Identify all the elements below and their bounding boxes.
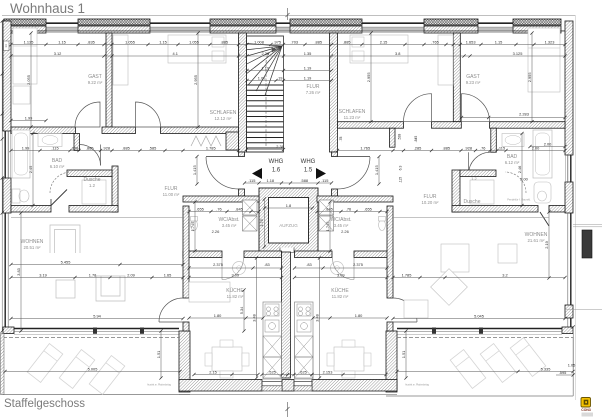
svg-text:.845: .845 [325, 206, 333, 211]
svg-text:11.82 m²: 11.82 m² [332, 294, 349, 299]
svg-text:2.38: 2.38 [261, 51, 269, 56]
svg-text:.625: .625 [299, 369, 307, 374]
svg-text:2.955: 2.955 [527, 72, 532, 82]
svg-text:.76: .76 [346, 206, 351, 211]
svg-text:.885: .885 [86, 145, 94, 150]
svg-text:2.26: 2.26 [341, 229, 350, 234]
svg-text:.115: .115 [51, 145, 58, 150]
svg-text:.528: .528 [398, 134, 402, 141]
svg-text:2.19: 2.19 [544, 241, 549, 249]
svg-text:1.75: 1.75 [259, 219, 264, 227]
svg-text:Pendeltür f. Raumkl.: Pendeltür f. Raumkl. [507, 198, 531, 202]
svg-text:.703: .703 [290, 39, 298, 44]
svg-text:3.48: 3.48 [251, 314, 256, 322]
svg-text:1.653: 1.653 [466, 39, 476, 44]
svg-text:.115: .115 [399, 177, 403, 183]
svg-text:2.955: 2.955 [366, 72, 371, 82]
svg-text:1.8: 1.8 [286, 203, 291, 208]
svg-text:3.125: 3.125 [513, 51, 523, 56]
svg-text:1.99: 1.99 [22, 145, 30, 150]
svg-text:9.22 m²: 9.22 m² [88, 80, 103, 85]
svg-text:1.80: 1.80 [355, 313, 363, 318]
svg-text:.19: .19 [277, 75, 282, 80]
svg-text:.595: .595 [559, 370, 567, 375]
svg-text:12.12 m²: 12.12 m² [215, 116, 233, 121]
svg-text:10.20 m²: 10.20 m² [422, 200, 440, 205]
svg-text:3.2: 3.2 [502, 272, 507, 277]
svg-text:Austritt m. Plattenbelag: Austritt m. Plattenbelag [147, 384, 171, 387]
svg-text:CON3: CON3 [581, 408, 591, 412]
svg-text:9.23 m²: 9.23 m² [466, 80, 481, 85]
svg-text:3.45 m²: 3.45 m² [334, 223, 349, 228]
svg-text:.655: .655 [364, 206, 372, 211]
svg-text:5.34: 5.34 [239, 306, 244, 314]
svg-text:5.005: 5.005 [88, 366, 98, 371]
svg-text:6.10 m²: 6.10 m² [50, 164, 65, 169]
svg-text:6.3: 6.3 [399, 166, 403, 171]
svg-text:KÜCHE: KÜCHE [226, 287, 244, 294]
svg-text:2.15: 2.15 [380, 39, 388, 44]
svg-text:3.45 m²: 3.45 m² [222, 223, 237, 228]
svg-text:2.153: 2.153 [323, 369, 333, 374]
svg-text:.928: .928 [464, 145, 472, 150]
svg-text:2.26: 2.26 [212, 229, 221, 234]
svg-text:4.1: 4.1 [173, 51, 178, 56]
svg-text:.115: .115 [498, 145, 505, 150]
svg-text:1.19: 1.19 [261, 65, 269, 70]
svg-text:6.12 m²: 6.12 m² [505, 160, 520, 165]
svg-text:2.055: 2.055 [26, 75, 31, 85]
svg-text:1.51: 1.51 [401, 351, 406, 359]
svg-text:WHG: WHG [301, 159, 316, 165]
svg-text:2.00: 2.00 [520, 177, 528, 182]
svg-text:1.135: 1.135 [24, 39, 34, 44]
svg-text:1.2: 1.2 [471, 176, 477, 181]
svg-text:1.65: 1.65 [164, 272, 172, 277]
svg-text:.885: .885 [314, 39, 322, 44]
svg-text:1.765: 1.765 [360, 145, 370, 150]
svg-text:.885: .885 [220, 39, 228, 44]
svg-text:.76: .76 [216, 206, 221, 211]
svg-text:.008: .008 [71, 145, 79, 150]
svg-text:.78: .78 [339, 137, 343, 142]
svg-text:2.15: 2.15 [209, 369, 217, 374]
svg-text:1.323: 1.323 [545, 39, 555, 44]
svg-text:21.61 m²: 21.61 m² [528, 238, 546, 243]
svg-text:3.09: 3.09 [231, 272, 239, 277]
svg-text:2.283: 2.283 [519, 112, 529, 117]
svg-text:1.785: 1.785 [206, 145, 216, 150]
svg-text:2.00: 2.00 [544, 141, 552, 146]
svg-text:1.35: 1.35 [304, 51, 312, 56]
svg-text:1.415: 1.415 [374, 165, 379, 175]
svg-text:1.15: 1.15 [495, 39, 503, 44]
svg-text:11.82 m²: 11.82 m² [227, 294, 244, 299]
svg-text:2.45: 2.45 [28, 166, 33, 174]
svg-text:.83: .83 [264, 262, 269, 267]
svg-text:3.48: 3.48 [314, 314, 319, 322]
svg-text:WHG: WHG [269, 159, 284, 165]
svg-text:2.375: 2.375 [353, 262, 363, 267]
svg-text:20.51 m²: 20.51 m² [24, 245, 42, 250]
svg-text:1.51: 1.51 [156, 351, 161, 359]
svg-text:5.045: 5.045 [474, 313, 484, 318]
svg-text:.115: .115 [321, 178, 328, 183]
svg-text:1.5: 1.5 [304, 168, 313, 174]
svg-text:1.19: 1.19 [304, 75, 312, 80]
svg-text:.83: .83 [306, 262, 311, 267]
svg-text:.588: .588 [300, 178, 308, 183]
svg-text:1.05: 1.05 [568, 363, 576, 368]
svg-text:.835: .835 [87, 39, 95, 44]
svg-text:3.09: 3.09 [337, 272, 345, 277]
svg-text:3.8: 3.8 [395, 51, 400, 56]
svg-text:2.375: 2.375 [213, 262, 223, 267]
svg-text:.885: .885 [343, 39, 351, 44]
svg-text:KÜCHE: KÜCHE [331, 287, 349, 294]
svg-text:.885: .885 [122, 145, 130, 150]
svg-text:AUFZUG: AUFZUG [279, 223, 298, 228]
svg-text:5.335: 5.335 [541, 366, 551, 371]
svg-text:7.26 m²: 7.26 m² [306, 90, 321, 95]
svg-text:.885: .885 [442, 145, 450, 150]
svg-text:3.83: 3.83 [16, 268, 21, 276]
svg-text:2.46: 2.46 [517, 166, 522, 174]
svg-text:.655: .655 [196, 206, 204, 211]
svg-text:.845: .845 [414, 136, 418, 143]
svg-text:1.00: 1.00 [258, 75, 266, 80]
svg-text:1.415: 1.415 [192, 165, 197, 175]
svg-text:1.78: 1.78 [89, 272, 97, 277]
svg-text:5.455: 5.455 [61, 259, 71, 264]
svg-text:1.785: 1.785 [402, 272, 412, 277]
svg-text:.845: .845 [235, 206, 243, 211]
svg-text:.115: .115 [248, 178, 255, 183]
svg-text:3.19: 3.19 [39, 272, 47, 277]
svg-text:5.94: 5.94 [93, 313, 101, 318]
svg-text:1.19: 1.19 [304, 65, 312, 70]
svg-text:Wohnhaus 1: Wohnhaus 1 [10, 1, 85, 16]
svg-text:11.23 m²: 11.23 m² [344, 115, 361, 120]
svg-text:1.6: 1.6 [272, 168, 281, 174]
svg-text:2.955: 2.955 [193, 75, 198, 85]
svg-text:1.80: 1.80 [214, 313, 222, 318]
svg-text:Austritt m. Plattenbelag: Austritt m. Plattenbelag [405, 384, 429, 387]
svg-text:11.00 m²: 11.00 m² [163, 192, 180, 197]
svg-text:14: 14 [4, 44, 8, 48]
svg-text:Dusche: Dusche [464, 199, 481, 205]
svg-text:1.745: 1.745 [190, 222, 195, 232]
svg-text:2.00: 2.00 [532, 145, 540, 150]
svg-text:1.055: 1.055 [125, 39, 135, 44]
svg-text:1.055: 1.055 [189, 39, 199, 44]
svg-text:.765: .765 [431, 39, 439, 44]
svg-text:1.15: 1.15 [58, 39, 66, 44]
svg-text:.975: .975 [273, 39, 281, 44]
svg-text:1.745: 1.745 [325, 222, 330, 232]
svg-text:1.008: 1.008 [254, 39, 264, 44]
svg-text:2.09: 2.09 [127, 272, 135, 277]
svg-text:.525: .525 [268, 369, 276, 374]
svg-text:2.38: 2.38 [276, 144, 284, 149]
svg-text:.76: .76 [480, 145, 485, 150]
svg-text:.285: .285 [414, 145, 422, 150]
svg-text:3.12: 3.12 [54, 51, 62, 56]
svg-text:.585: .585 [149, 145, 157, 150]
svg-text:1.15: 1.15 [159, 39, 167, 44]
svg-text:1.18: 1.18 [266, 178, 274, 183]
svg-text:Staffelgeschoss: Staffelgeschoss [4, 398, 85, 410]
svg-text:1.2: 1.2 [89, 183, 96, 188]
svg-text:.928: .928 [102, 145, 110, 150]
